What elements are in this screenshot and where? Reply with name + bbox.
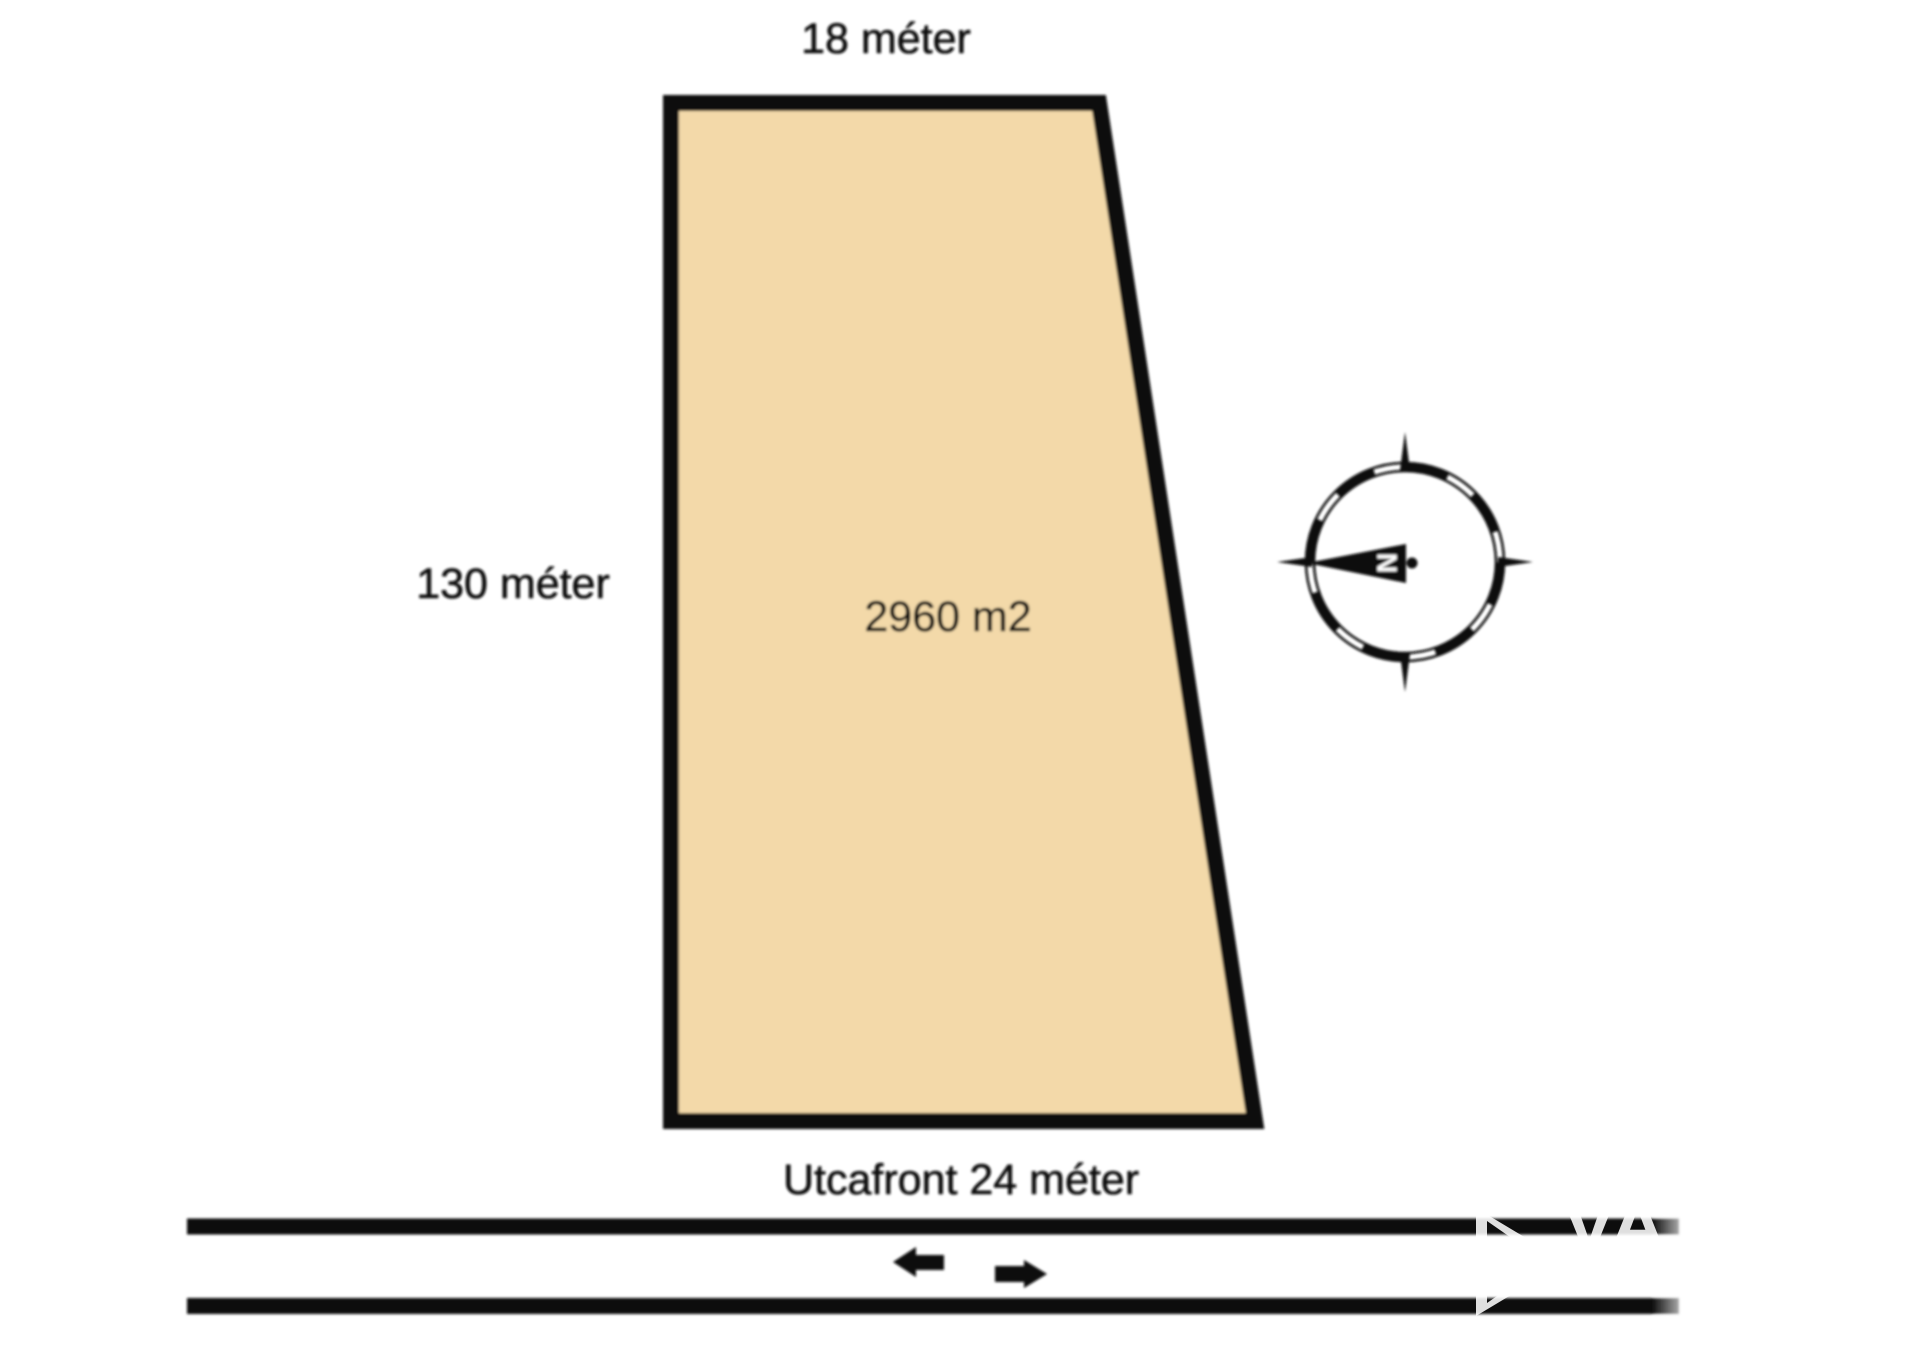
- svg-text:VA: VA: [1563, 1187, 1666, 1266]
- svg-text:N: N: [1372, 553, 1403, 573]
- svg-text:Utcafront 24 méter: Utcafront 24 méter: [783, 1156, 1139, 1204]
- svg-text:18 méter: 18 méter: [801, 15, 971, 63]
- svg-text:130 méter: 130 méter: [416, 560, 610, 608]
- svg-text:2960 m2: 2960 m2: [864, 593, 1031, 641]
